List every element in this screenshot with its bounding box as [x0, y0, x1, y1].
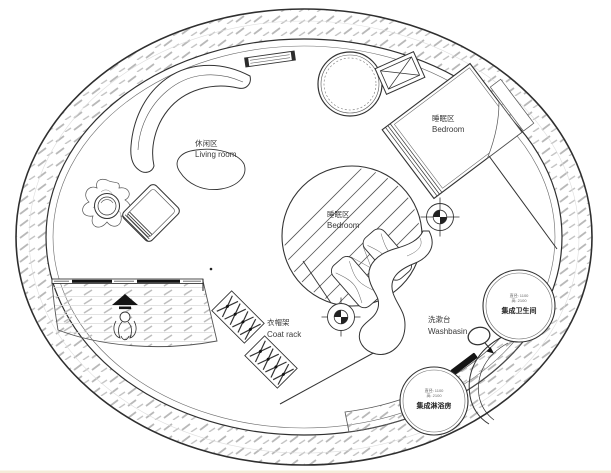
living-room-label-zh: 休闲区	[195, 138, 218, 148]
washbasin-label-zh: 洗漱台	[428, 314, 451, 324]
entrance-deck	[52, 279, 217, 347]
bedroom-upper-label-zh: 睡眠区	[432, 114, 455, 123]
shower-pod-label: 集成淋浴房	[416, 401, 452, 410]
bedroom-center-label-en: Bedroom	[327, 221, 360, 230]
bedroom-upper-label-en: Bedroom	[432, 125, 465, 134]
bathroom-pod-label: 集成卫生间	[501, 306, 537, 315]
living-room-label-en: Living room	[195, 150, 237, 159]
floor-plan-page: 直径: 1100 高: 2100 集成卫生间 直径: 1100 高: 2100 …	[0, 0, 611, 473]
shower-pod: 直径: 1100 高: 2100 集成淋浴房	[400, 367, 468, 435]
coat-rack-label-zh: 衣帽架	[267, 317, 290, 327]
dot-mark	[210, 268, 213, 271]
coat-rack-label-en: Coat rack	[267, 330, 302, 339]
door-panel-1	[72, 280, 112, 283]
washbasin-label-en: Washbasin	[428, 327, 467, 336]
bedroom-center-label-zh: 睡眠区	[327, 210, 350, 219]
bathroom-pod: 直径: 1100 高: 2100 集成卫生间	[483, 270, 555, 342]
door-panel-2	[137, 280, 180, 283]
round-table	[318, 52, 382, 116]
shower-pod-dim2: 高: 2100	[426, 392, 442, 398]
bathroom-pod-dim2: 高: 2100	[511, 297, 527, 303]
floor-plan-canvas: 直径: 1100 高: 2100 集成卫生间 直径: 1100 高: 2100 …	[0, 0, 611, 473]
